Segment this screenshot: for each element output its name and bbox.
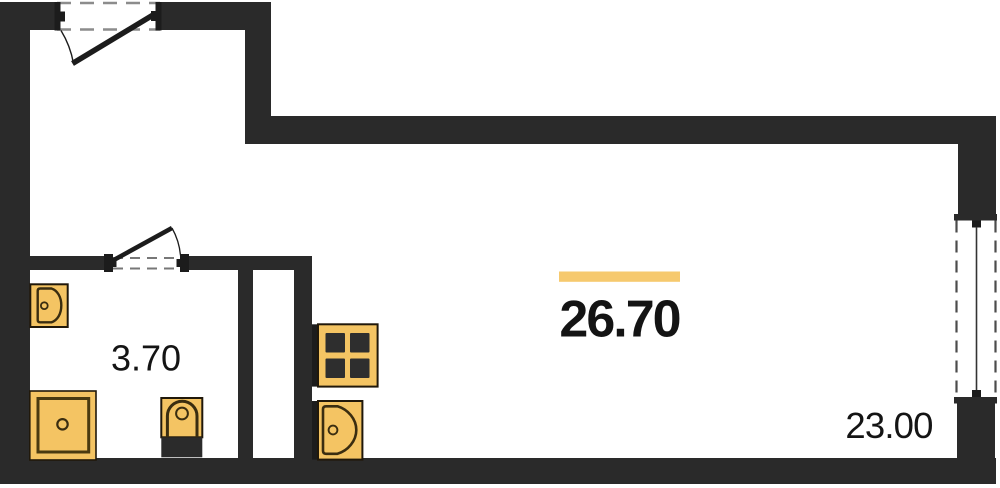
svg-text:23.00: 23.00 <box>845 405 932 446</box>
svg-text:3.70: 3.70 <box>111 338 181 379</box>
svg-text:26.70: 26.70 <box>559 291 679 349</box>
